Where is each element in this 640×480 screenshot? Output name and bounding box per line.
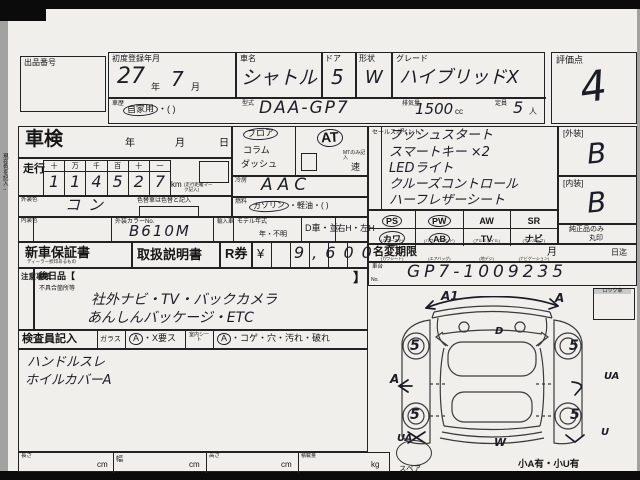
score-value: 4 — [577, 63, 610, 110]
spare-label: スペア — [399, 465, 421, 473]
notes-hw1: 社外ナビ・TV・バックカメラ — [91, 293, 277, 308]
mileage-col: 十 — [129, 161, 149, 172]
lock-label: ロック車 — [594, 289, 631, 294]
first-reg-month: 7 — [171, 69, 184, 90]
glass-a: A — [129, 333, 144, 346]
equip-tv: TV — [478, 234, 496, 244]
photo-bottom-bar — [0, 471, 640, 480]
dims-band: 長さ cm 幅 cm 高さ cm 積載量 kg — [18, 452, 390, 472]
load-unit: kg — [371, 461, 379, 469]
history-label: 車歴 — [112, 101, 118, 107]
damage-mark: D — [495, 326, 503, 337]
genuine-line1: 純正品のみ — [569, 226, 604, 233]
shaken-row: 車検 年 月 日 — [18, 126, 232, 158]
equip-ps: PS — [382, 215, 402, 228]
r-ticket-price: 9,600 — [294, 245, 380, 262]
yen-sign: ¥ — [257, 247, 264, 261]
mileage-note: (走行距離マーク記入) — [184, 183, 216, 192]
history-paren: ・( ) — [158, 104, 176, 114]
manual-label: 取扱説明書 — [137, 248, 202, 262]
first-reg-year: 27 — [117, 65, 145, 88]
damage-mark: A1 — [441, 289, 459, 303]
shaken-label: 車検 — [25, 130, 63, 150]
sales-line: スマートキー ×2 — [389, 146, 490, 160]
mileage-digit: 4 — [91, 172, 101, 191]
ext-grade-box: [外装] B — [558, 126, 637, 176]
auction-sheet-photo: 現在色を記入→ 出品番号 初度登録年月 27 年 7 月 車名 シャトル ドア … — [0, 0, 640, 480]
chassis-band: 車台 No. GP7-1009235 — [368, 262, 637, 286]
shaken-month: 月 — [175, 139, 185, 150]
shape-value: W — [365, 69, 383, 88]
damage-mark: UA — [604, 371, 619, 382]
int-grade-label: [内装] — [563, 180, 583, 188]
disp-label: 排気量 — [402, 101, 408, 107]
wid-label: 幅 — [116, 456, 123, 463]
mileage-grid: 十1 万1 千4 百5 十2 一7 — [43, 160, 171, 196]
car-outline-diagram — [392, 296, 592, 452]
seat-a: A — [217, 333, 232, 346]
later-items-label: 後日品【 — [39, 272, 75, 281]
inspector-hw1: ハンドルスレ — [27, 356, 105, 370]
mileage-col: 百 — [108, 161, 128, 172]
load-label: 積載量 — [301, 454, 306, 459]
wid-unit: cm — [189, 461, 200, 469]
ac-label: 冷房 — [235, 178, 241, 184]
mileage-digit: 7 — [155, 172, 165, 191]
door-label: ドア — [325, 55, 341, 63]
mt-note: MTのみ記入 — [343, 151, 367, 162]
ac-value: AAC — [261, 177, 311, 195]
model-year-value: 年・不明 — [259, 231, 287, 238]
fuel-label: 燃料 — [235, 199, 241, 205]
warranty-sub: ディーラー捺印あるもの — [27, 260, 76, 265]
mileage-digit: 1 — [49, 172, 59, 191]
corner-note: 小A有・小U有 — [518, 460, 579, 470]
cap-label: 定員 — [495, 101, 501, 107]
notes-band: 注意事項 後日品【 】 不具合箇所等 社外ナビ・TV・バックカメラ あんしんバッ… — [18, 268, 368, 330]
grade-value: ハイブリッドX — [399, 69, 519, 88]
grade-label: グレード — [396, 55, 428, 63]
genuine-box: 純正品のみ 丸印 — [558, 224, 637, 244]
later-items-bracket: 】 — [353, 271, 366, 285]
glass-rest: ・X要ス — [143, 333, 176, 343]
ext-color-label: 外装色 — [21, 198, 27, 204]
margin-note: 現在色を記入→ — [1, 153, 7, 192]
name-change-due: 日迄 — [611, 249, 627, 257]
mt-unit: 速 — [351, 163, 360, 172]
disp-unit: cc — [455, 108, 463, 116]
equip-pw: PW — [428, 215, 451, 228]
sales-line: クルーズコントロール — [389, 178, 518, 192]
auction-no-box: 出品番号 — [20, 56, 106, 112]
model-code-label: 型式 — [242, 101, 248, 107]
inspector-free-box: ハンドルスレ ホイルカバーA — [18, 349, 368, 452]
sales-line: LEDライト — [389, 162, 453, 176]
glass-label: ガラス — [100, 336, 121, 343]
car-name-label: 車名 — [240, 55, 256, 63]
photo-corner — [0, 0, 46, 21]
shaken-day: 日 — [219, 139, 229, 150]
cap-value: 5 — [513, 100, 523, 117]
year-unit: 年 — [151, 83, 160, 92]
color-code-value: B610M — [129, 224, 191, 240]
auction-no-label: 出品番号 — [24, 59, 56, 67]
mt-speed-box — [301, 153, 317, 171]
chassis-label2: No. — [371, 278, 379, 283]
shaken-year: 年 — [125, 139, 135, 150]
seat-rest: ・コゲ・穴・汚れ・破れ — [231, 333, 330, 343]
door-value: 5 — [331, 67, 344, 88]
chassis-value: GP7-1009235 — [407, 264, 567, 282]
mileage-col: 万 — [65, 161, 85, 172]
mileage-digit: 1 — [70, 172, 80, 191]
inspector-label: 検査員記入 — [22, 334, 77, 346]
sales-label: セールスポイント — [372, 130, 378, 136]
docs-band: 新車保証書 ディーラー捺印あるもの 取扱説明書 R券 ¥ 9,600 — [18, 242, 368, 268]
warranty-label: 新車保証書 — [25, 246, 90, 260]
defects-label: 不具合箇所等 — [39, 286, 75, 292]
history-value: 自家用 — [123, 103, 159, 117]
damage-mark: 5 — [570, 407, 580, 423]
spare-tire-circle — [396, 440, 432, 466]
equip-sr: SR — [525, 216, 544, 226]
genuine-line2: 丸印 — [589, 235, 603, 242]
damage-mark: 5 — [410, 338, 420, 354]
inspector-band: 検査員記入 ガラス A・X要ス 室内シート A・コゲ・穴・汚れ・破れ — [18, 330, 368, 349]
mileage-digit: 5 — [113, 172, 123, 191]
mileage-col: 十 — [44, 161, 64, 172]
d-car: D車・並 — [305, 224, 339, 233]
damage-diagram: ロック車 — [388, 286, 638, 454]
damage-mark: W — [494, 436, 506, 449]
mileage-mark-box — [199, 161, 229, 183]
sales-points-box: セールスポイント プッシュスタート スマートキー ×2 LEDライト クルーズコ… — [368, 126, 558, 210]
mileage-unit: km — [171, 181, 182, 189]
hei-unit: cm — [281, 461, 292, 469]
hei-label: 高さ — [209, 454, 215, 460]
sales-line: ハーフレザーシート — [389, 194, 505, 208]
damage-mark: A — [390, 372, 399, 386]
int-color-label: 内装色 — [21, 219, 27, 225]
month-unit: 月 — [191, 83, 200, 92]
ext-color-row: 外装色 コン 色替車は色替と記入 — [18, 196, 232, 217]
name-change-month: 月 — [547, 248, 557, 259]
header-table: 初度登録年月 27 年 7 月 車名 シャトル ドア 5 形状 W グレード ハ… — [108, 52, 545, 124]
len-label: 長さ — [21, 454, 27, 460]
score-box: 評価点 4 — [551, 52, 637, 124]
shift-cell: フロア コラム ダッシュ AT MTのみ記入 速 — [232, 126, 368, 176]
color-change-note: 色替車は色替と記入 — [137, 198, 191, 204]
model-year-label: モデル年式 — [237, 219, 267, 225]
inspector-hw2: ホイルカバーA — [25, 374, 112, 388]
len-unit: cm — [97, 461, 108, 469]
equipment-grid: PS(パワーステ) PW(パワーウインド) AW(アルミホイル) SR(サンルー… — [368, 210, 558, 244]
sales-line: プッシュスタート — [389, 129, 493, 143]
fuel-gasoline: ガソリン — [249, 200, 290, 213]
shift-dash: ダッシュ — [241, 160, 277, 169]
int-color-band: 内装色 外装カラーNo. B610M 輸入車 モデル年式 年・不明 D車・並 右… — [18, 217, 368, 242]
name-change-band: 名変期限 月 日迄 — [368, 244, 637, 262]
ext-color-value: コン — [65, 198, 111, 214]
notes-hw2: あんしんバッケージ・ETC — [87, 311, 254, 326]
lock-box: ロック車 — [593, 288, 635, 320]
model-code-value: DAA-GP7 — [259, 100, 350, 118]
photo-top-bar — [0, 0, 640, 9]
seat-label: 室内シート — [188, 333, 210, 344]
int-grade-box: [内装] B — [558, 176, 637, 224]
notes-label: 注意事項 — [21, 273, 29, 281]
import-label: 輸入車 — [217, 220, 223, 226]
color-change-box — [139, 206, 199, 217]
shape-label: 形状 — [359, 55, 375, 63]
ext-grade-value: B — [586, 138, 608, 169]
ac-row: 冷房 AAC — [232, 176, 368, 197]
cap-unit: 人 — [529, 108, 537, 116]
mileage-col: 一 — [150, 161, 170, 172]
chassis-label1: 車台 — [372, 265, 378, 271]
shift-column: コラム — [243, 146, 270, 155]
first-reg-label: 初度登録年月 — [112, 55, 160, 63]
damage-mark: 5 — [410, 407, 420, 423]
equip-aw: AW — [476, 216, 497, 226]
name-change-label: 名変期限 — [373, 247, 417, 259]
mileage-col: 千 — [86, 161, 106, 172]
damage-mark: U — [601, 427, 609, 438]
r-ticket-label: R券 — [225, 247, 247, 261]
damage-mark: 5 — [569, 338, 579, 354]
damage-mark: A — [555, 291, 564, 305]
mileage-row: 走行 十1 万1 千4 百5 十2 一7 km (走行距離マーク記入) — [18, 158, 232, 196]
fuel-others: ・軽油・( ) — [289, 201, 329, 210]
ext-grade-label: [外装] — [563, 130, 583, 138]
int-grade-value: B — [586, 187, 608, 218]
fuel-row: 燃料 ガソリン・軽油・( ) — [232, 197, 368, 217]
mileage-label: 走行 — [23, 164, 34, 176]
disp-value: 1500 — [415, 102, 453, 118]
trans-at: AT — [317, 128, 344, 147]
shift-floor: フロア — [243, 127, 279, 141]
mileage-digit: 2 — [134, 172, 144, 191]
car-name-value: シャトル — [241, 69, 317, 89]
